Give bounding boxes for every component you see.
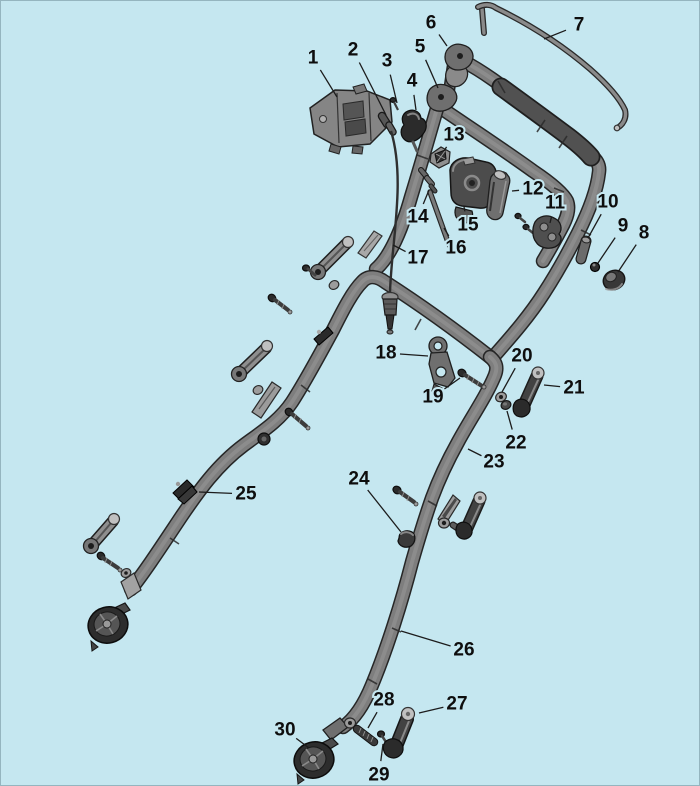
washer-mid-right (439, 518, 450, 528)
part-label-30: 30 (274, 720, 295, 741)
part-label-24: 24 (348, 469, 370, 490)
part-label-29: 29 (368, 765, 389, 786)
leader-line-12 (512, 190, 519, 191)
part-label-10: 10 (597, 192, 618, 213)
part-label-1: 1 (308, 48, 319, 69)
parts-diagram-canvas: 1234567891011121314151617181920212223242… (0, 0, 700, 786)
part-label-26: 26 (453, 640, 474, 661)
curved-washer-hole (499, 395, 503, 399)
part-label-21: 21 (563, 378, 585, 399)
exploded-view-drawing: 1234567891011121314151617181920212223242… (1, 1, 700, 786)
part-label-9: 9 (618, 216, 629, 237)
part-label-17: 17 (407, 248, 428, 269)
part-label-14: 14 (407, 207, 429, 228)
part-label-12: 12 (522, 179, 543, 200)
part-label-5: 5 (415, 37, 426, 58)
part-label-28: 28 (373, 690, 394, 711)
part-label-15: 15 (457, 215, 479, 236)
part-label-18: 18 (375, 343, 396, 364)
part-label-27: 27 (446, 694, 467, 715)
part-label-23: 23 (483, 452, 504, 473)
part-label-25: 25 (235, 484, 257, 505)
bail-tip-cap (614, 125, 620, 131)
part-label-20: 20 (511, 346, 532, 367)
part-label-11: 11 (545, 193, 566, 214)
part-label-6: 6 (426, 13, 437, 34)
part-label-4: 4 (407, 71, 418, 92)
square-nut-mid-left (258, 433, 270, 445)
part-label-7: 7 (574, 15, 585, 36)
end-cap-24 (398, 531, 415, 547)
handle-corner-front (427, 84, 457, 111)
part-label-2: 2 (348, 40, 359, 61)
part-label-22: 22 (505, 433, 526, 454)
part-label-16: 16 (445, 238, 466, 259)
lock-nut (591, 263, 600, 272)
part-label-8: 8 (639, 223, 650, 244)
part-label-19: 19 (422, 387, 443, 408)
part-label-3: 3 (382, 51, 393, 72)
part-label-13: 13 (443, 125, 464, 146)
